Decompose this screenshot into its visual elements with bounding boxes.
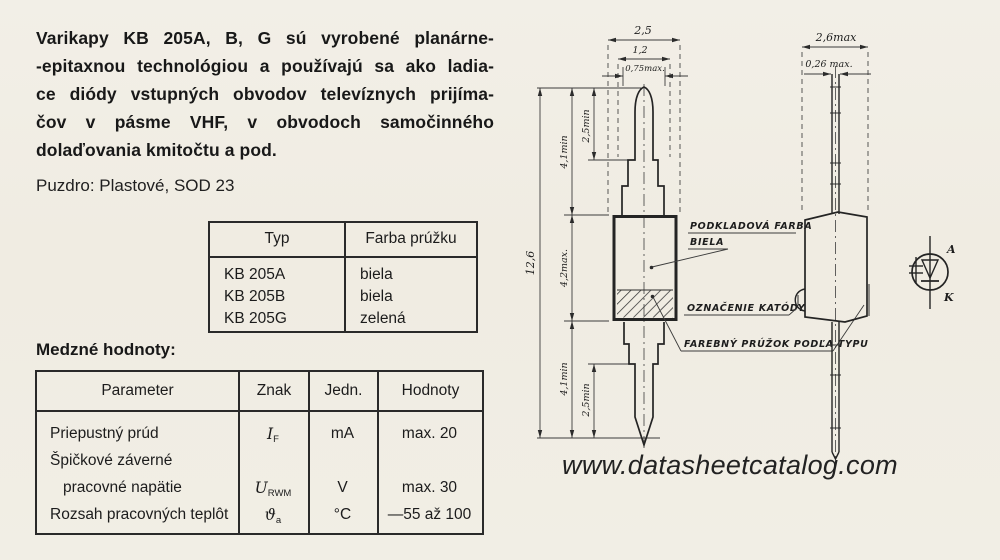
intro-line: čov v pásme VHF, v obvodoch samočinného xyxy=(36,108,494,136)
label-base-color: PODKLADOVÁ FARBA xyxy=(690,220,812,232)
color-stripe-hatch xyxy=(617,290,673,318)
label-cathode-mark: OZNAČENIE KATÓDY xyxy=(687,302,806,314)
cell-parameter: Priepustný prúd xyxy=(37,425,238,452)
dim-width-2-5: 2,5 xyxy=(633,24,652,37)
cell-parameter: pracovné napätie xyxy=(37,479,238,506)
symbol-subscript: a xyxy=(276,515,281,526)
table-row: KB 205A biela xyxy=(210,264,476,286)
cell-value: —55 až 100 xyxy=(377,506,482,533)
symbol-letter: U xyxy=(255,479,268,497)
dim-bottom-tip-2-5: 2,5min xyxy=(581,383,592,417)
intro-paragraph: Varikapy KB 205A, B, G sú vyrobené planá… xyxy=(36,24,494,164)
varicap-symbol: A K xyxy=(909,236,956,309)
cell-color: zelená xyxy=(360,308,406,330)
cell-unit: °C xyxy=(308,506,377,533)
type-color-table: Typ Farba prúžku KB 205A biela KB 205B b… xyxy=(208,221,478,333)
column-header-hodnoty: Hodnoty xyxy=(379,382,482,400)
intro-line: -epitaxnou technológiou a používajú sa a… xyxy=(36,52,494,80)
dim-body-4-2: 4,2max. xyxy=(559,249,570,288)
anode-label: A xyxy=(946,243,956,256)
cell-symbol: IF xyxy=(238,425,308,452)
cell-type: KB 205G xyxy=(224,308,287,330)
cell-value: max. 30 xyxy=(377,479,482,506)
dim-lead-0-26: 0,26 max. xyxy=(805,59,852,70)
cell-symbol: ϑa xyxy=(238,506,308,533)
cell-color: biela xyxy=(360,286,393,308)
symbol-letter: ϑ xyxy=(265,506,276,524)
cell-color: biela xyxy=(360,264,393,286)
intro-line: dolaďovania kmitočtu a pod. xyxy=(36,136,494,164)
table-row: KB 205B biela xyxy=(210,286,476,308)
table-row: KB 205G zelená xyxy=(210,308,476,330)
front-view: 2,5 1,2 0,75max. xyxy=(524,24,869,452)
dim-bottom-lead-4-1: 4,1min xyxy=(559,362,570,396)
cell-type: KB 205A xyxy=(224,264,285,286)
dim-height-12-6: 12,6 xyxy=(524,251,537,276)
type-table-header: Typ Farba prúžku xyxy=(210,223,476,258)
symbol-subscript: F xyxy=(273,434,279,445)
cell-type: KB 205B xyxy=(224,286,285,308)
datasheet-page: Varikapy KB 205A, B, G sú vyrobené planá… xyxy=(0,0,1000,560)
column-header-farba: Farba prúžku xyxy=(346,230,476,248)
limits-table-body: Priepustný prúd IF mA max. 20 Špičkové z… xyxy=(37,412,482,533)
dim-width-1-2: 1,2 xyxy=(632,45,647,56)
side-view: 2,6max 0,26 max. xyxy=(795,31,871,460)
type-table-rows: KB 205A biela KB 205B biela KB 205G zele… xyxy=(210,264,476,330)
watermark-text: www.datasheetcatalog.com xyxy=(545,450,915,481)
dim-top-lead-4-1: 4,1min xyxy=(559,135,570,169)
limits-heading: Medzné hodnoty: xyxy=(36,340,176,360)
column-header-jedn: Jedn. xyxy=(310,382,377,400)
cell-unit: V xyxy=(308,479,377,506)
column-header-typ: Typ xyxy=(210,230,344,248)
package-line: Puzdro: Plastové, SOD 23 xyxy=(36,176,234,196)
dim-top-tip-2-5: 2,5min xyxy=(581,109,592,143)
limits-table: Parameter Znak Jedn. Hodnoty Priepustný … xyxy=(35,370,484,535)
column-header-znak: Znak xyxy=(240,382,308,400)
intro-line: Varikapy KB 205A, B, G sú vyrobené planá… xyxy=(36,24,494,52)
intro-line: ce diódy vstupných obvodov televíznych p… xyxy=(36,80,494,108)
limits-table-header: Parameter Znak Jedn. Hodnoty xyxy=(37,372,482,412)
dim-side-2-6: 2,6max xyxy=(815,31,857,44)
cell-parameter: Rozsah pracovných teplôt xyxy=(37,506,238,533)
cell-unit: mA xyxy=(308,425,377,452)
cell-value: max. 20 xyxy=(377,425,482,452)
label-base-color-white: BIELA xyxy=(690,237,724,248)
cell-symbol: URWM xyxy=(238,479,308,506)
cell-parameter: Špičkové záverné xyxy=(37,452,238,479)
dim-width-0-75: 0,75max. xyxy=(625,64,665,74)
column-header-parameter: Parameter xyxy=(37,382,238,400)
cathode-label: K xyxy=(943,291,954,304)
symbol-subscript: RWM xyxy=(268,488,292,499)
